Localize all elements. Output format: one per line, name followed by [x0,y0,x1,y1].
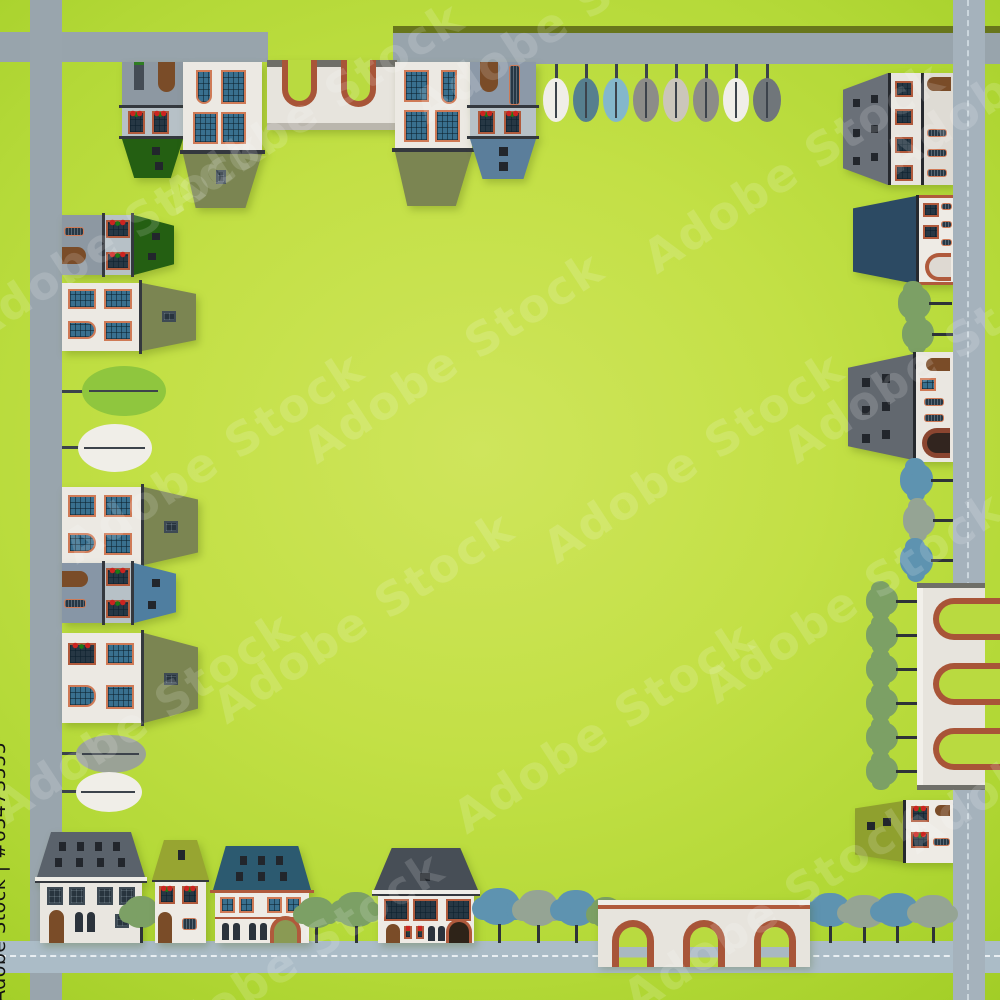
tree-trunk [929,302,952,305]
top-house-white-olive [183,62,262,208]
attic-window [853,129,860,137]
tree-trunk [896,926,899,943]
roof-side-gray [843,73,888,185]
attic-window [152,233,160,240]
tree-trunk [931,559,954,562]
cornice [467,136,539,139]
attic-window [867,822,875,830]
round-tree-green [866,722,918,752]
top-bridge-two-arches [267,60,397,136]
leaf-canopy [753,78,781,122]
roof-olive [395,152,472,206]
arch-window [75,912,83,932]
window [221,70,246,104]
attic-window [152,147,160,155]
window [384,899,409,921]
leaf-canopy [663,78,689,122]
window [106,643,134,665]
tree-trunk [932,927,935,943]
ladder-door [509,65,520,105]
window [923,203,939,217]
roof-side-lime [855,801,903,862]
top-house-blue-gray [470,62,536,179]
attic-window [240,856,247,865]
attic-window [862,378,870,387]
road-bottom [0,941,1000,973]
slot-window [927,129,947,137]
round-tree-green [866,688,918,718]
sideways-leaf-tree [62,366,166,416]
slot-window [941,239,952,246]
attic-window [55,858,62,867]
left-house-gray-green [62,215,174,275]
attic-window [871,95,878,103]
arch-door [62,247,86,264]
tree-trunk [931,479,954,482]
right-house-gray-arch [848,352,953,462]
tree-canopy [902,318,934,350]
tree-trunk [896,668,918,671]
attic-window [280,872,287,881]
flower-window [68,643,96,665]
round-tree-blue [900,463,954,497]
watermark-text: Adobe Stock [203,500,523,734]
hanging-leaf-tree [603,64,629,122]
cornice [392,148,475,152]
round-tree-green [902,318,954,350]
cornice [141,630,144,726]
road-right [953,0,985,1000]
leaf-canopy [82,366,166,416]
bridge-arch-opening [341,60,376,107]
small-door [182,918,197,930]
attic-window [236,872,243,881]
hanging-leaf-tree [633,64,659,122]
flower-window [106,252,130,270]
window [47,887,63,905]
slot-window [941,203,952,210]
attic-window [162,311,176,322]
arch-door [386,924,400,943]
ladder-door [933,838,950,846]
tree-canopy [336,892,376,927]
right-house-lime [855,800,953,863]
cornice [139,280,142,354]
flower-window [152,111,169,134]
arch-window [260,923,267,940]
arch-window [87,912,95,932]
right-viaduct [917,583,1000,790]
roof-slate [37,832,145,877]
window [106,685,134,709]
tree-canopy [866,688,898,718]
bridge-arch-opening [612,920,654,967]
sideways-leaf-tree [62,735,146,773]
arch-gate-dark [922,428,950,458]
watermark-text: Adobe Stock [533,340,853,574]
round-tree-green [898,286,952,320]
attic-window [883,818,891,826]
window [895,81,913,97]
cornice [131,561,134,625]
cornice [131,213,134,277]
bridge-arch-opening [683,920,725,967]
arch-door [927,77,951,91]
attic-window [853,99,860,107]
tree-canopy [903,503,935,537]
bridge-arch-opening [933,663,1000,705]
hanging-leaf-tree [753,64,781,122]
right-house-gray-tall [843,73,953,185]
attic-window [499,162,508,171]
ladder-door [134,62,144,90]
bridge-base [267,123,397,130]
roof-dark-green [122,139,183,178]
tree-trunk [355,926,358,943]
sideways-leaf-tree [62,772,142,812]
top-house-gray-green [122,62,183,178]
attic-window [113,842,120,851]
road-bottom-dash-line [0,955,1000,957]
attic-window [59,842,66,851]
tree-canopy [900,543,933,577]
bridge-edge-highlight [917,588,923,785]
flower-window [911,806,929,822]
flower-pot [416,926,424,939]
round-tree-green [866,756,918,786]
illustration-canvas: Adobe Stock Adobe Stock Adobe Stock Adob… [0,0,1000,1000]
arch-door [158,912,172,943]
leaf-canopy [573,78,599,122]
arch-window [428,926,435,941]
tree-trunk [896,702,918,705]
attic-window [258,872,265,881]
round-tree-green [866,654,918,684]
tree-trunk [829,926,832,943]
sideways-leaf-tree [62,424,152,472]
leaf-canopy [78,424,152,472]
roof-dark-gray [374,848,478,890]
arch-door [480,62,498,92]
window [68,495,96,517]
arch-door [935,805,950,816]
attic-window [420,873,430,881]
attic-window [871,153,878,161]
attic-window [95,842,102,851]
tree-trunk [498,924,501,943]
slot-window [927,169,947,177]
window [895,109,913,125]
roof-blue [134,563,176,623]
flower-window [911,832,929,848]
slot-window [927,149,947,157]
attic-window [862,406,870,415]
left-house-white-olive [62,487,198,565]
window [895,165,913,181]
window [446,899,471,921]
roof-side-navy [853,196,916,284]
slot-window [924,414,944,422]
bridge-arch-opening [282,60,317,107]
bridge-arch-opening [754,920,796,967]
road-right-dash-line [967,0,969,1000]
flower-window [106,568,130,586]
window [404,110,429,142]
arch-window [68,533,96,553]
leaf-canopy [543,78,569,122]
tree-canopy [298,897,334,928]
window [221,112,246,144]
cornice [119,136,186,139]
attic-window [853,157,860,165]
tree-trunk [896,600,918,603]
left-house-white-olive [62,633,198,723]
cornice [141,484,144,568]
roof-blue [470,139,536,179]
hanging-leaf-tree [723,64,749,122]
tree-canopy [866,654,898,684]
leaf-canopy [603,78,629,122]
roof-teal [213,846,311,890]
window [69,887,85,905]
flower-window [128,111,145,134]
slot-window [941,221,952,228]
tree-trunk [896,770,918,773]
attic-window [882,374,890,383]
road-top-right-segment [393,33,1000,64]
arch-door [49,910,64,943]
arch-window [68,685,96,707]
arch-window [249,923,256,940]
arch-window [441,70,457,104]
attic-window [152,579,160,587]
attic-window [155,162,163,170]
attic-window [148,601,156,609]
tree-canopy [866,620,898,650]
tree-canopy [866,756,898,786]
watermark-text: Adobe Stock [293,240,613,474]
tree-trunk [896,736,918,739]
attic-window [276,856,283,865]
tree-trunk [537,925,540,943]
flower-pot [404,926,412,939]
tree-trunk [933,519,955,522]
watermark-text: Adobe Stock [443,610,763,844]
attic-window [97,858,104,867]
window [193,112,218,144]
hanging-leaf-tree [573,64,599,122]
flower-window [478,111,495,134]
house-wall [62,215,104,275]
left-house-blue [62,563,176,623]
attic-window [178,850,185,860]
arch-window [222,923,229,940]
window [923,225,939,239]
window [267,897,282,913]
attic-window [862,434,870,443]
attic-window [882,430,890,439]
window [97,887,113,905]
attic-window [77,842,84,851]
tree-canopy [900,463,933,497]
round-tree-green [866,620,918,650]
arch-door [926,358,950,371]
attic-window [164,673,178,685]
arch-door [158,62,175,92]
window [895,137,913,153]
leaf-canopy [693,78,719,122]
round-tree-blue [900,543,954,577]
hanging-leaf-tree [543,64,569,122]
arch-window [68,321,96,339]
roof-side-gray [848,354,913,460]
bridge-arch-opening [933,728,1000,770]
leaf-canopy [76,735,146,773]
leaf-canopy [633,78,659,122]
hanging-leaf-tree [693,64,719,122]
attic-window [216,170,226,184]
flower-window [182,886,198,904]
attic-window [118,858,125,867]
bottom-house-center-big [372,845,480,943]
tree-canopy [913,895,953,928]
window [104,289,132,309]
round-tree-green [866,586,918,616]
slot-window [924,398,944,406]
flower-window [159,886,175,904]
window [104,533,132,555]
roof-dark-green [134,215,174,275]
attic-window [148,253,156,260]
window [220,897,235,913]
attic-window [499,147,508,156]
flower-window [106,220,130,238]
round-tree-gray [913,895,953,943]
leaf-canopy [723,78,749,122]
leaf-canopy [76,772,142,812]
flower-window [504,111,521,134]
left-house-white-olive [62,283,196,351]
tree-trunk [896,634,918,637]
tree-trunk [575,925,578,943]
flower-window [106,600,130,618]
round-tree-gray [903,503,955,537]
attic-window [871,125,878,133]
window [104,495,132,517]
tree-trunk [315,927,318,943]
window [920,378,936,391]
watermark-credit-text: Adobe Stock | #63473555 [0,742,10,1000]
tree-canopy [866,586,898,616]
arch-window [438,926,445,941]
attic-window [76,858,83,867]
attic-window [882,402,890,411]
tree-canopy [866,722,898,752]
bottom-house-teal [212,844,312,943]
window [435,110,460,142]
cornice [180,150,265,154]
ladder-door [64,227,84,236]
tree-trunk [140,927,143,943]
round-tree-green [336,892,376,943]
tree-trunk [863,927,866,943]
arch-gate [925,253,951,281]
window [104,321,132,341]
window [239,897,254,913]
attic-window [164,521,178,533]
round-tree-green [298,897,334,943]
tree-trunk [932,333,954,336]
window [413,899,438,921]
bridge-arch-opening [933,598,1000,640]
arch-window [196,70,212,104]
arch-window [233,923,240,940]
window [404,70,429,102]
right-house-navy [853,195,953,285]
window [68,289,96,309]
ladder-door [64,599,86,608]
hanging-leaf-tree [663,64,689,122]
arch-gate-dark [446,919,472,943]
bottom-house-lime-small [152,838,209,943]
attic-window [258,856,265,865]
top-house-white-olive [395,62,472,206]
bridge-base [917,785,985,790]
arch-door [62,571,88,587]
roof-lime [152,840,209,880]
bottom-viaduct [598,900,810,967]
road-top-olive-stripe [393,26,1000,33]
